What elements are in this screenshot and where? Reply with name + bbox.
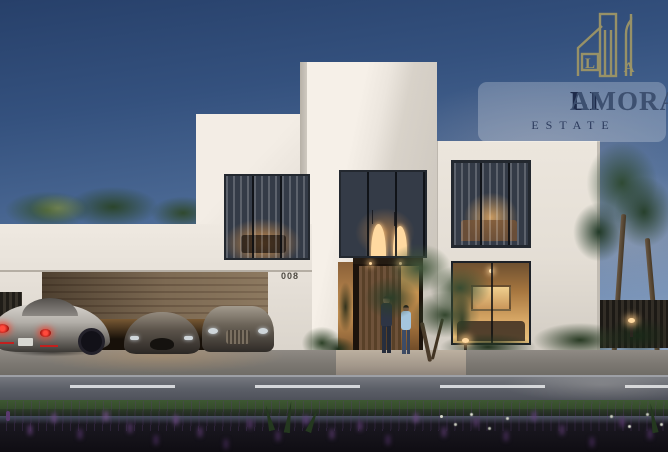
svg-text:A: A — [624, 60, 635, 76]
car-grille — [150, 338, 174, 350]
foreground-flower-bed — [0, 409, 668, 452]
villa-rendering: 008 — [0, 0, 668, 452]
brand-logo: L A LIAMORA ESTATE — [472, 2, 668, 148]
car-grille — [226, 330, 250, 344]
flower-stems — [0, 401, 668, 431]
svg-text:L: L — [585, 56, 595, 72]
headlight — [208, 328, 218, 334]
house-number: 008 — [281, 271, 299, 281]
indoor-plant — [338, 282, 353, 332]
sports-car-silver — [0, 298, 116, 358]
car-cabin — [22, 298, 78, 316]
purple-flowers — [6, 411, 10, 421]
olive-tree — [356, 226, 506, 366]
brand-name-secondary: AMORA — [570, 86, 668, 117]
window-curtains — [226, 176, 308, 258]
brand-tagline: ESTATE — [472, 118, 668, 133]
license-plate — [18, 338, 33, 346]
headlight — [130, 336, 139, 340]
skyline-buildings-icon: L A — [533, 4, 607, 84]
luxury-sedan — [202, 306, 274, 352]
headlight — [184, 336, 193, 340]
taillight — [40, 329, 51, 337]
tree-canopy — [400, 286, 490, 344]
taillight-strip — [0, 342, 14, 344]
white-flowers — [440, 415, 443, 418]
palm-frond-highlight — [18, 188, 98, 228]
headlight — [258, 328, 268, 334]
garden-bollard-light — [630, 320, 633, 337]
car-wheel — [78, 328, 105, 355]
window-left-bedroom — [224, 174, 310, 260]
sports-car-dark — [124, 312, 200, 354]
